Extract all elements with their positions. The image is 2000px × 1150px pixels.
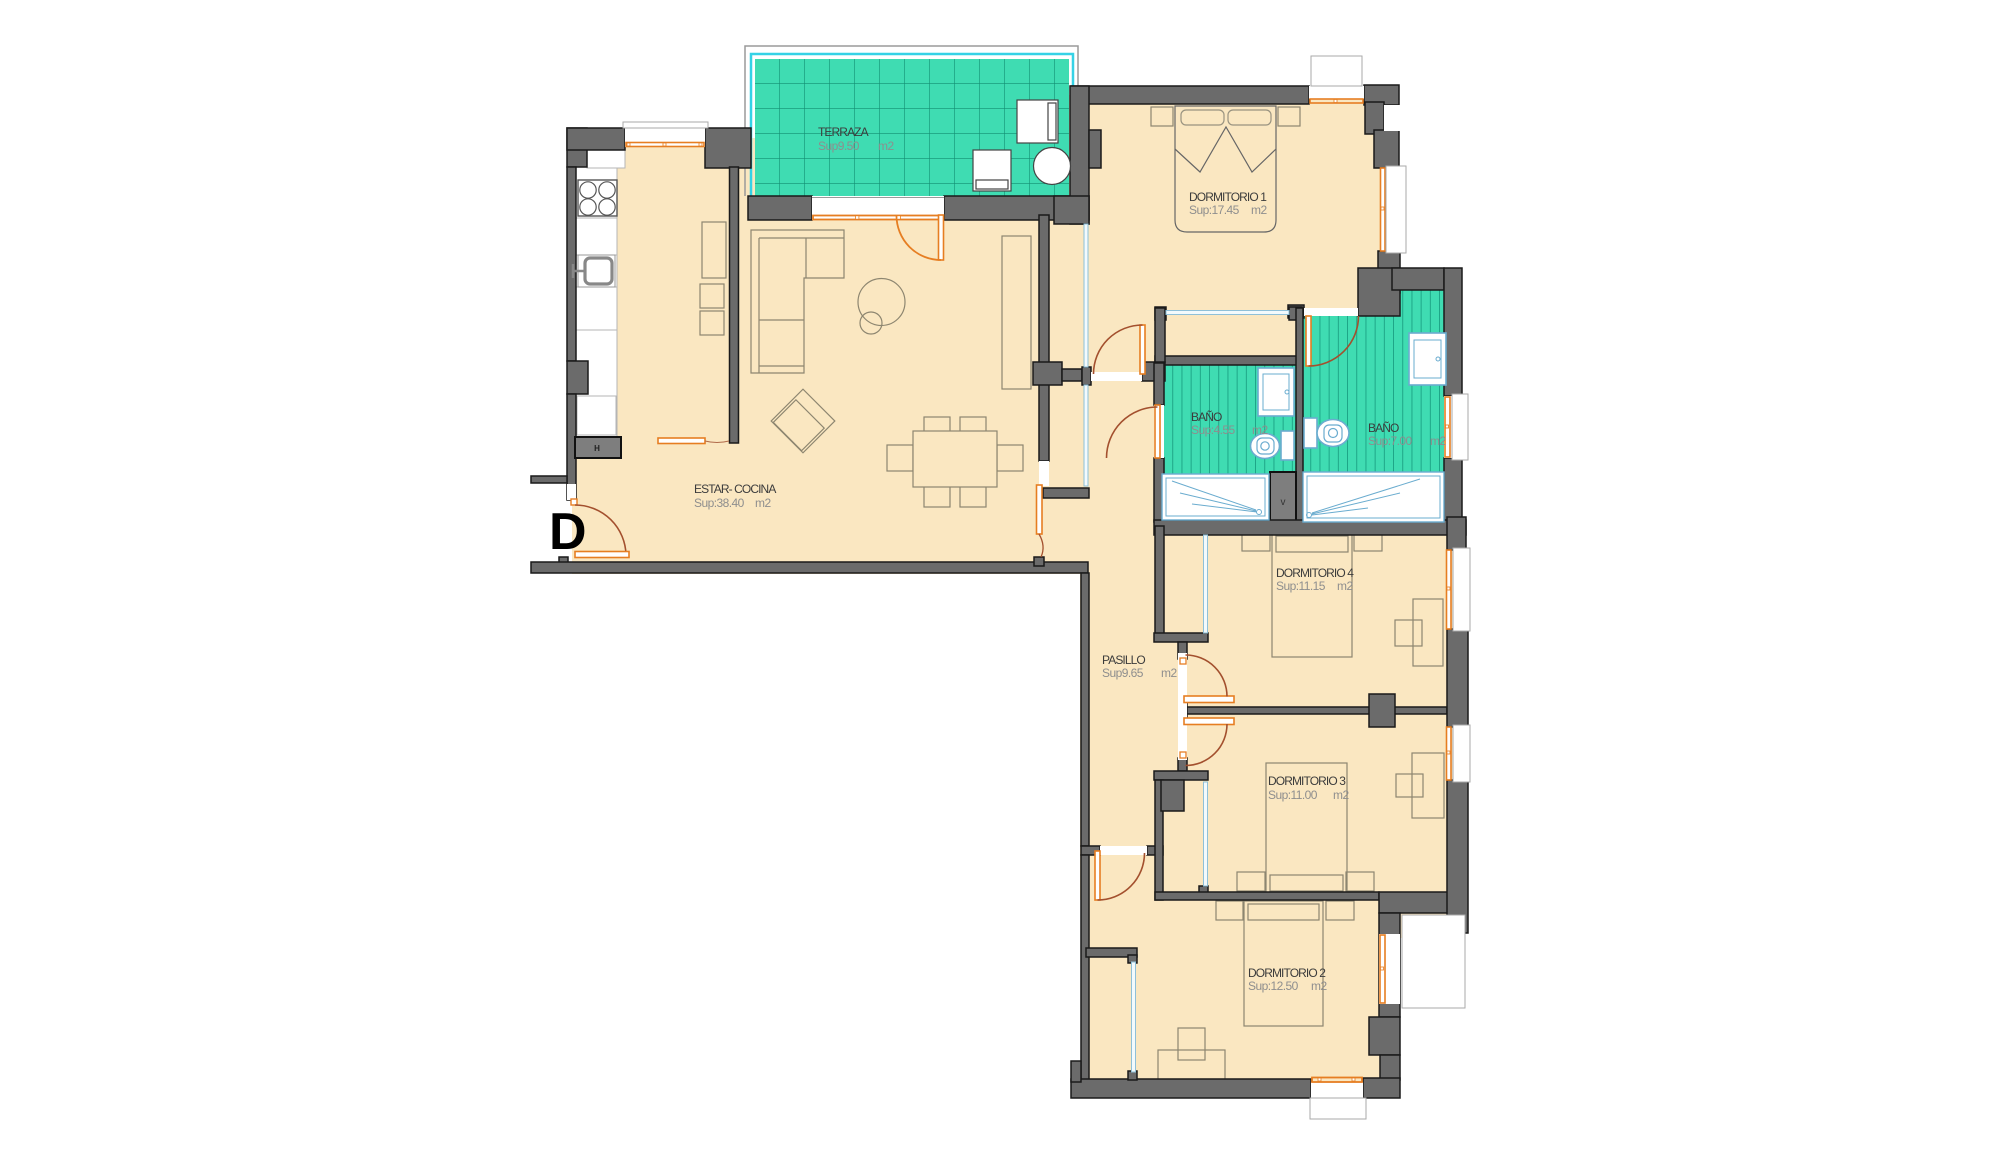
svg-text:m2: m2 (1251, 203, 1267, 217)
svg-text:m2: m2 (1333, 788, 1349, 802)
svg-text:m2: m2 (878, 139, 894, 153)
svg-text:Sup9.65: Sup9.65 (1102, 666, 1144, 680)
svg-text:H: H (594, 444, 600, 453)
svg-text:DORMITORIO 4: DORMITORIO 4 (1276, 566, 1354, 580)
svg-text:Sup:12.50: Sup:12.50 (1248, 979, 1299, 993)
svg-text:m2: m2 (1430, 434, 1446, 448)
svg-text:BAÑO: BAÑO (1368, 421, 1399, 435)
svg-text:ESTAR- COCINA: ESTAR- COCINA (694, 482, 776, 496)
svg-text:D: D (549, 503, 587, 561)
svg-text:DORMITORIO 2: DORMITORIO 2 (1248, 966, 1326, 980)
svg-text:m2: m2 (1161, 666, 1177, 680)
svg-text:m2: m2 (1311, 979, 1327, 993)
svg-text:Sup:11.00: Sup:11.00 (1268, 788, 1318, 802)
svg-text:Sup:7.00: Sup:7.00 (1368, 434, 1413, 448)
svg-text:TERRAZA: TERRAZA (818, 125, 869, 139)
svg-text:DORMITORIO 3: DORMITORIO 3 (1268, 774, 1346, 788)
svg-text:Sup:17.45: Sup:17.45 (1189, 203, 1240, 217)
svg-text:Sup:11.15: Sup:11.15 (1276, 579, 1326, 593)
svg-text:m2: m2 (1337, 579, 1353, 593)
svg-text:PASILLO: PASILLO (1102, 653, 1145, 667)
svg-text:Sup:4.55: Sup:4.55 (1191, 423, 1236, 437)
svg-text:Sup9.50: Sup9.50 (818, 139, 860, 153)
svg-text:m2: m2 (755, 496, 771, 510)
svg-text:m2: m2 (1252, 423, 1268, 437)
svg-text:Sup:38.40: Sup:38.40 (694, 496, 745, 510)
svg-text:v: v (1281, 497, 1286, 508)
svg-text:DORMITORIO 1: DORMITORIO 1 (1189, 190, 1267, 204)
svg-text:BAÑO: BAÑO (1191, 410, 1222, 424)
